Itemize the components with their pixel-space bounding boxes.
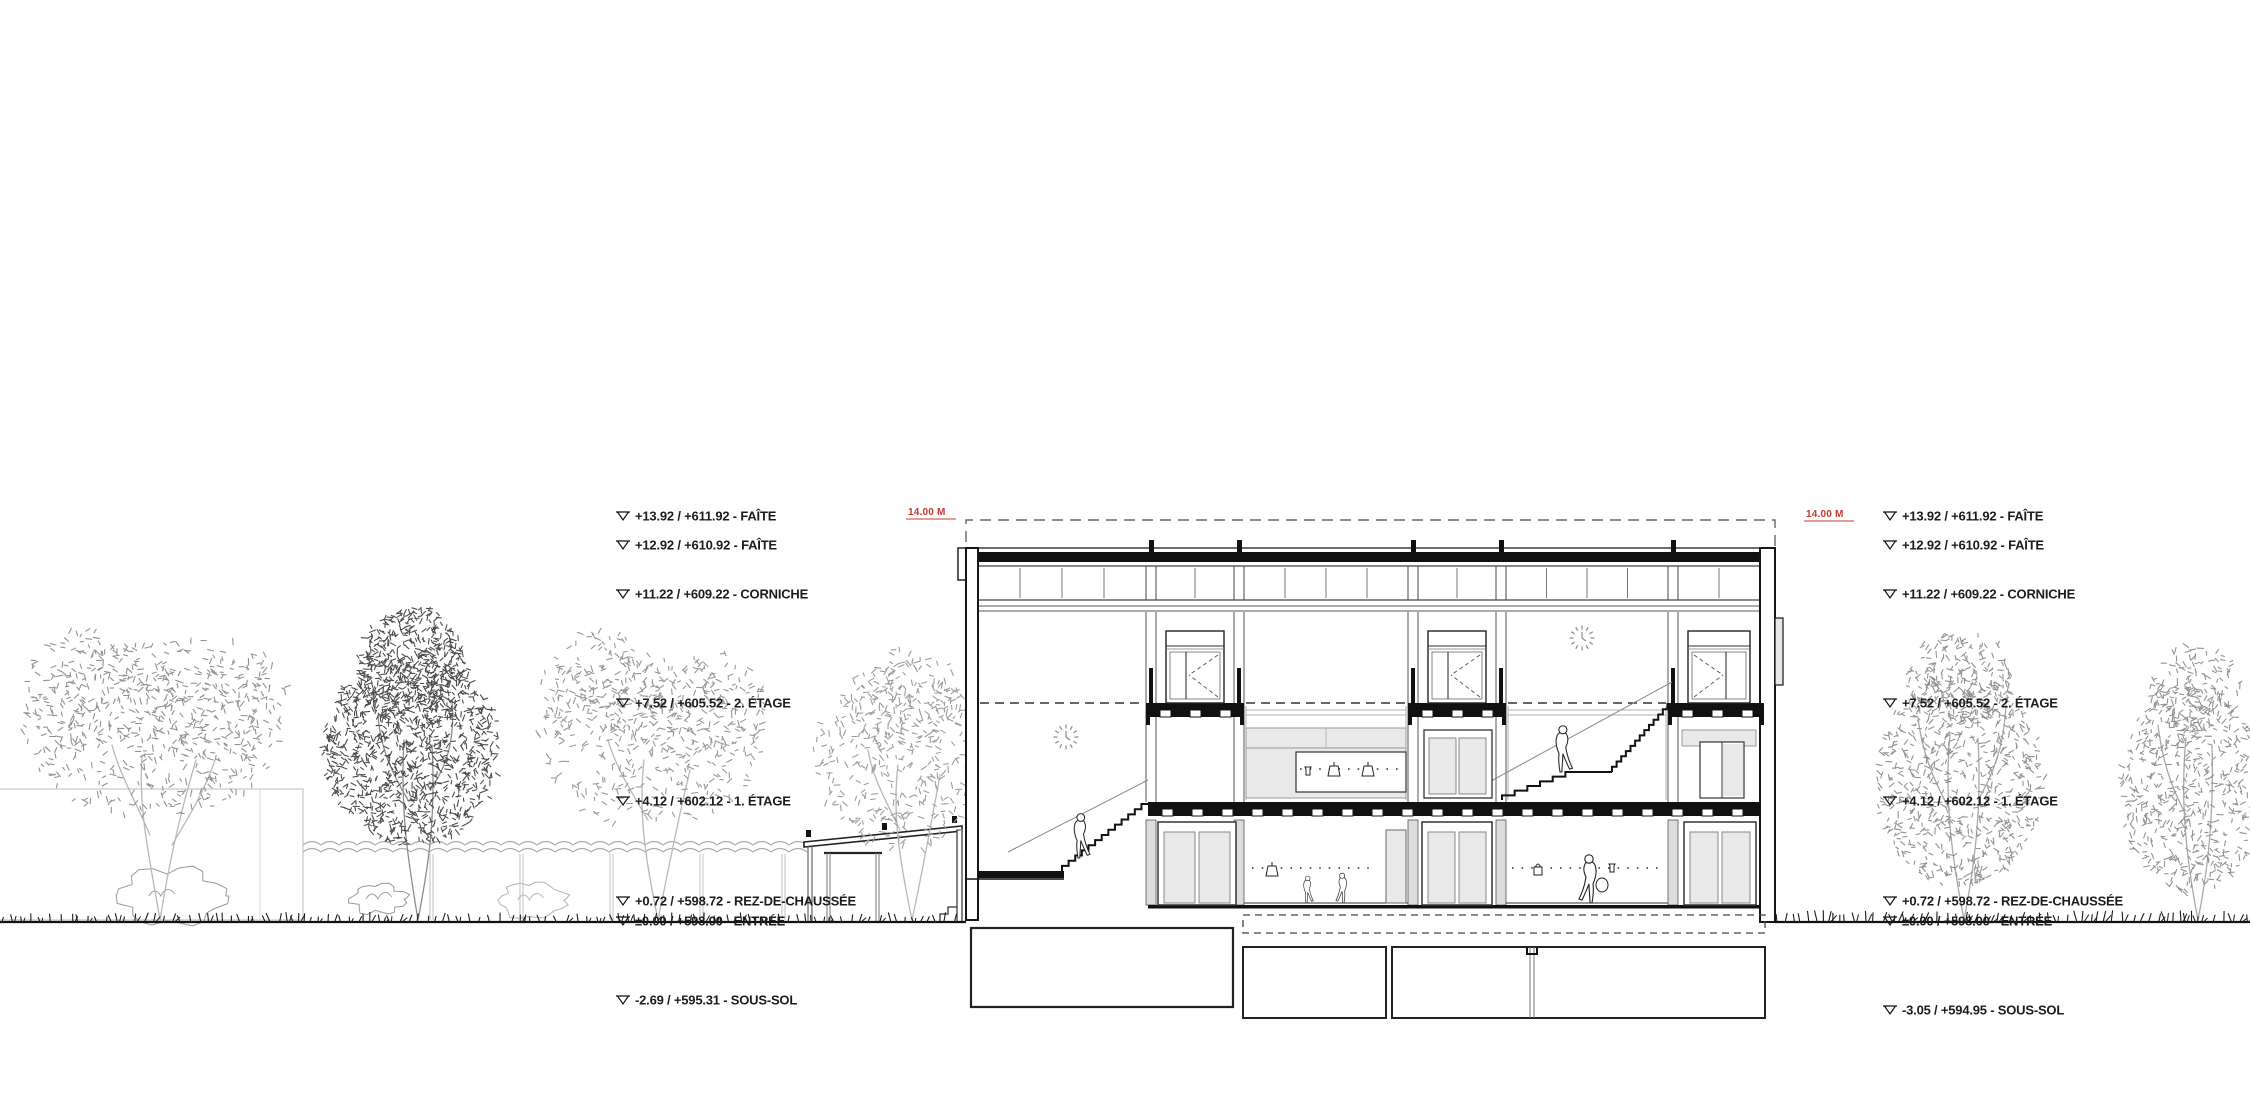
level-marker-icon	[1883, 512, 1897, 520]
level-marker-icon	[1883, 541, 1897, 549]
elevation-label: +13.92 / +611.92 - FAÎTE	[635, 509, 777, 524]
elevation-label: -2.69 / +595.31 - SOUS-SOL	[635, 993, 797, 1008]
elevation-label: +0.72 / +598.72 - REZ-DE-CHAUSSÉE	[1902, 894, 2124, 909]
elevation-label: +0.72 / +598.72 - REZ-DE-CHAUSSÉE	[635, 894, 857, 909]
elevation-labels-left: +13.92 / +611.92 - FAÎTE+12.92 / +610.92…	[616, 509, 857, 1008]
tree-6	[2119, 644, 2250, 920]
elevation-label: +11.22 / +609.22 - CORNICHE	[1902, 587, 2076, 602]
tree-1	[21, 628, 290, 920]
elevation-label: +7.52 / +605.52 - 2. ÉTAGE	[1902, 696, 2058, 711]
elevation-label: ±0.00 / +598.00 - ENTRÉE	[635, 914, 786, 929]
level-marker-icon	[1883, 897, 1897, 905]
level-marker-icon	[616, 996, 630, 1004]
elevation-labels-right: +13.92 / +611.92 - FAÎTE+12.92 / +610.92…	[1883, 509, 2124, 1018]
section-drawing-canvas: +13.92 / +611.92 - FAÎTE+12.92 / +610.92…	[0, 0, 2250, 1117]
building-section	[958, 512, 1784, 935]
elevation-label: -3.05 / +594.95 - SOUS-SOL	[1902, 1003, 2064, 1018]
elevation-label: +12.92 / +610.92 - FAÎTE	[635, 538, 777, 553]
elevation-label: +7.52 / +605.52 - 2. ÉTAGE	[635, 696, 791, 711]
background-building-outline	[0, 789, 303, 920]
elevation-label: +12.92 / +610.92 - FAÎTE	[1902, 538, 2044, 553]
svg-text:14.00 M: 14.00 M	[1806, 509, 1844, 520]
level-marker-icon	[1883, 699, 1897, 707]
level-marker-icon	[616, 590, 630, 598]
elevation-label: +13.92 / +611.92 - FAÎTE	[1902, 509, 2044, 524]
elevation-label: +11.22 / +609.22 - CORNICHE	[635, 587, 809, 602]
tree-2	[320, 607, 500, 920]
architectural-section-sheet: +13.92 / +611.92 - FAÎTE+12.92 / +610.92…	[0, 0, 2250, 1117]
height-limit-dimension: 14.00 M	[1804, 509, 1854, 521]
level-marker-icon	[616, 512, 630, 520]
tree-5	[1876, 634, 2047, 921]
level-marker-icon	[616, 897, 630, 905]
elevation-label: +4.12 / +602.12 - 1. ÉTAGE	[635, 794, 791, 809]
height-limit-dimension: 14.00 M	[906, 507, 956, 519]
level-marker-icon	[1883, 1006, 1897, 1014]
grass-left	[2, 912, 956, 922]
elevation-label: +4.12 / +602.12 - 1. ÉTAGE	[1902, 794, 2058, 809]
tree-3	[536, 628, 765, 920]
level-marker-icon	[616, 541, 630, 549]
svg-text:14.00 M: 14.00 M	[908, 507, 946, 518]
level-marker-icon	[1883, 590, 1897, 598]
